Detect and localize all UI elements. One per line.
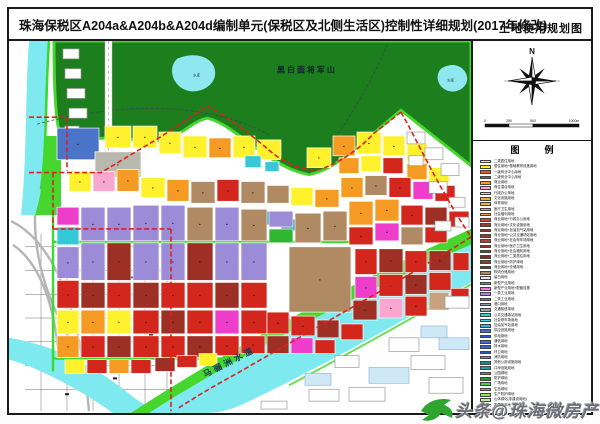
legend-label: 商业用地+加油加气站用地 (494, 229, 533, 232)
scale-bar: 0 250 500 1000m (482, 117, 582, 136)
legend-color-swatch (480, 345, 491, 349)
legend-label: 留白用地 (494, 276, 508, 279)
legend-color-swatch (480, 335, 491, 339)
legend-color-swatch (480, 377, 491, 381)
legend-color-swatch (480, 287, 491, 291)
legend-color-swatch (480, 165, 491, 169)
legend-color-swatch (480, 223, 491, 227)
legend-color-swatch (480, 271, 491, 275)
legend-label: 医疗卫生用地 (494, 208, 514, 211)
legend-label: 供电用地 (494, 335, 508, 338)
legend-color-swatch (480, 239, 491, 243)
legend-label: 社会停车场用地 (494, 319, 518, 322)
parcel (291, 187, 313, 205)
parcel (315, 340, 335, 354)
parcel (269, 211, 293, 227)
legend-label: 商业用地+二类居住用地 (494, 255, 530, 258)
scale-label-2: 500 (530, 119, 536, 123)
parcel (265, 162, 279, 172)
parcel (425, 148, 443, 160)
legend-color-swatch (480, 366, 491, 370)
scale-bar-icon: 0 250 500 1000m (482, 117, 582, 131)
parcel (57, 227, 79, 245)
legend-label: 商业用地+仓储用地 (494, 266, 523, 269)
parcel (65, 69, 81, 79)
parcel (445, 296, 469, 308)
legend-color-swatch (480, 313, 491, 317)
parcel (349, 387, 385, 401)
parcel (411, 356, 445, 370)
legend-label: 消防用地 (494, 356, 508, 359)
parcel (455, 217, 469, 227)
parcel (317, 320, 339, 338)
parcel (429, 377, 463, 393)
scale-label-1: 250 (506, 119, 512, 123)
legend-label: 其他公用设施用地 (494, 361, 521, 364)
legend-color-swatch (480, 234, 491, 238)
map-type-label: 土地使用规划图 (499, 20, 583, 36)
parcel (177, 356, 197, 368)
legend-color-swatch (480, 340, 491, 344)
parcel (421, 326, 447, 338)
legend-label: 商业用地+社会停车场用地 (494, 239, 533, 242)
legend-color-swatch (480, 202, 491, 206)
plan-sheet: 珠海保税区A204a&A204b&A204d编制单元(保税区及北侧生活区)控制性… (7, 7, 593, 415)
mountain-label: 黑白面将军山 (277, 65, 337, 75)
legend-color-swatch (480, 319, 491, 323)
parcel (435, 221, 451, 231)
legend-label: 商业用地+公共交通场站用地 (494, 234, 537, 237)
legend-color-swatch (480, 329, 491, 333)
legend-list: 二类居住用地 居住用地+基础教育设施用地 一级商业中心用地 二级 (473, 157, 591, 413)
legend-label: 二类居住用地 (494, 160, 514, 163)
legend-color-swatch (480, 356, 491, 360)
legend-label: 一级商业中心用地 (494, 171, 521, 174)
legend-color-swatch (480, 324, 491, 328)
compass: N (500, 45, 564, 116)
legend-color-swatch (480, 382, 491, 386)
legend-color-swatch (480, 160, 491, 164)
legend-label: 商住混合用地 (494, 186, 514, 189)
sheet-content: ■■■■■■■■■■■■■■■■■■■■■■■■■■■■■■■■■■■■■■■■… (9, 41, 591, 413)
legend-color-swatch (480, 372, 491, 376)
legend-label: 商业用地+医疗卫生用地 (494, 245, 530, 248)
legend-color-swatch (480, 181, 491, 185)
parcel (407, 132, 425, 144)
title-bar: 珠海保税区A204a&A204b&A204d编制单元(保税区及北侧生活区)控制性… (9, 9, 591, 41)
legend-color-swatch (480, 176, 491, 180)
legend-color-swatch (480, 298, 491, 302)
parcel (453, 253, 469, 271)
legend-color-swatch (480, 250, 491, 254)
parcel (109, 360, 129, 374)
bird-logo-icon (419, 395, 455, 423)
legend-color-swatch (480, 192, 491, 196)
parcel (267, 185, 289, 203)
parcel (383, 158, 403, 174)
legend-color-swatch (480, 282, 491, 286)
legend-label: 文化设施用地 (494, 197, 514, 200)
legend-label: 交通枢纽用地 (494, 308, 514, 311)
parcel (361, 156, 381, 172)
legend-label: 商业用地+防护绿地 (494, 261, 523, 264)
legend-color-swatch (480, 308, 491, 312)
legend-color-swatch (480, 388, 491, 392)
parcel (67, 88, 85, 98)
legend-label: 环卫用地 (494, 351, 508, 354)
legend-color-swatch (480, 229, 491, 233)
legend-label: 通信用地 (494, 340, 508, 343)
parcel (335, 356, 359, 368)
legend-color-swatch (480, 351, 491, 355)
legend-label: 新型产业用地+配套设施 (494, 287, 530, 290)
parcel (87, 360, 107, 374)
legend-color-swatch (480, 197, 491, 201)
parcel (441, 164, 459, 176)
legend-label: 公园绿地 (494, 372, 508, 375)
parcel (269, 229, 293, 243)
legend-header: 图 例 (473, 140, 591, 157)
legend-color-swatch (480, 276, 491, 280)
legend-label: 新型产业用地 (494, 282, 514, 285)
legend-label: 社会福利用地 (494, 213, 514, 216)
map-canvas: ■■■■■■■■■■■■■■■■■■■■■■■■■■■■■■■■■■■■■■■■… (9, 41, 471, 413)
legend-color-swatch (480, 245, 491, 249)
legend-label: 体育用地 (494, 202, 508, 205)
legend-label: 供应设施用地 (494, 329, 514, 332)
parcel (429, 273, 451, 291)
legend-label: 排水用地 (494, 345, 508, 348)
compass-north-label: N (529, 47, 535, 56)
parcel (341, 324, 363, 340)
legend-label: 二类工业用地 (494, 298, 514, 301)
legend-label: 商业用地+行政办公用地 (494, 218, 530, 221)
page-title: 珠海保税区A204a&A204b&A204d编制单元(保税区及北侧生活区)控制性… (9, 15, 547, 34)
parcel (261, 401, 287, 409)
legend-label: 公共交通场站用地 (494, 314, 521, 317)
legend-color-swatch (480, 255, 491, 259)
parcel (369, 367, 409, 383)
parcel (407, 164, 427, 180)
parcel (409, 156, 423, 166)
legend-label: 二级商业中心用地 (494, 176, 521, 179)
reservoir-small-label: 水库 (447, 78, 455, 83)
legend-label: 商业用地+社会福利用地 (494, 250, 530, 253)
legend-color-swatch (480, 266, 491, 270)
legend-label: 口岸设施用地 (494, 367, 514, 370)
parcel (69, 108, 87, 118)
legend-color-swatch (480, 170, 491, 174)
legend-color-swatch (480, 361, 491, 365)
legend-label: 生态绿地 (494, 388, 508, 391)
parcel (63, 49, 79, 59)
scale-label-3: 1000m (569, 119, 580, 123)
parcel (245, 156, 261, 168)
legend-label: 防护绿地 (494, 377, 508, 380)
legend-color-swatch (480, 208, 491, 212)
legend-label: 一类工业用地 (494, 292, 514, 295)
scale-label-0: 0 (484, 119, 486, 123)
legend-color-swatch (480, 186, 491, 190)
reservoir-big-label: 水库 (193, 73, 201, 78)
watermark: 头条@珠海微房产 (419, 395, 599, 423)
compass-rose-icon: N (500, 45, 564, 111)
parcel (131, 360, 151, 374)
legend-color-swatch (480, 260, 491, 264)
land-use-map: ■■■■■■■■■■■■■■■■■■■■■■■■■■■■■■■■■■■■■■■■… (9, 41, 471, 413)
legend-label: 行政办公用地 (494, 192, 514, 195)
plan-sheet-page: { "title_bar": { "title": "珠海保税区A204a&A2… (0, 0, 600, 424)
parcel (309, 389, 339, 401)
legend-label: 居住用地+基础教育设施用地 (494, 165, 537, 168)
legend-color-swatch (480, 213, 491, 217)
parcel (155, 358, 175, 372)
legend-color-swatch (480, 218, 491, 222)
watermark-text: 头条@珠海微房产 (455, 397, 599, 422)
legend-panel: N (471, 41, 591, 413)
parcel (439, 338, 469, 350)
legend-color-swatch (480, 303, 491, 307)
parcel (305, 373, 331, 385)
parcel (389, 338, 419, 352)
legend-label: 广场用地 (494, 382, 508, 385)
legend-label: 商业用地+文化设施用地 (494, 224, 530, 227)
parcel (65, 360, 85, 374)
legend-label: 港口用地 (494, 303, 508, 306)
legend-color-swatch (480, 292, 491, 296)
parcel (401, 227, 423, 245)
parcel (57, 207, 79, 225)
